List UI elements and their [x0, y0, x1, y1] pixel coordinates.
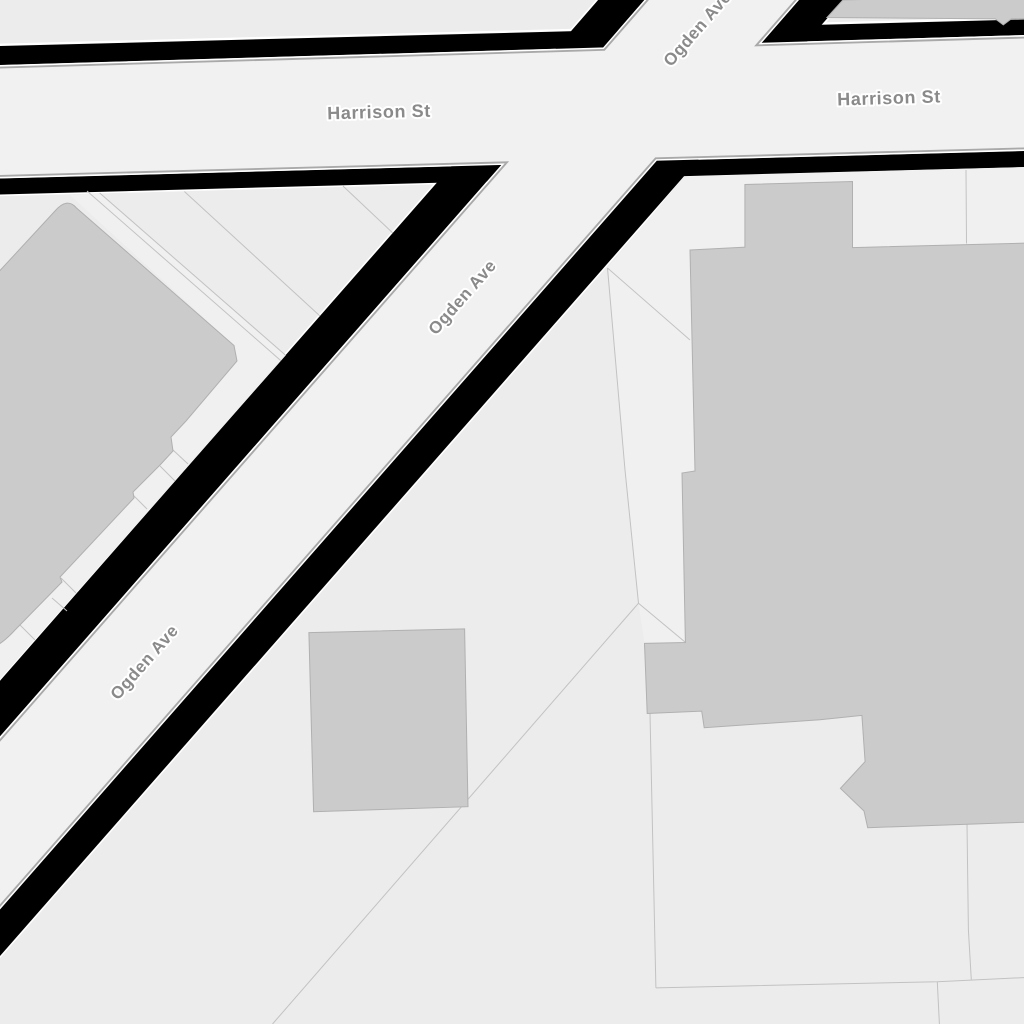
svg-text:Harrison St: Harrison St	[327, 101, 431, 124]
svg-text:Harrison St: Harrison St	[837, 86, 941, 109]
